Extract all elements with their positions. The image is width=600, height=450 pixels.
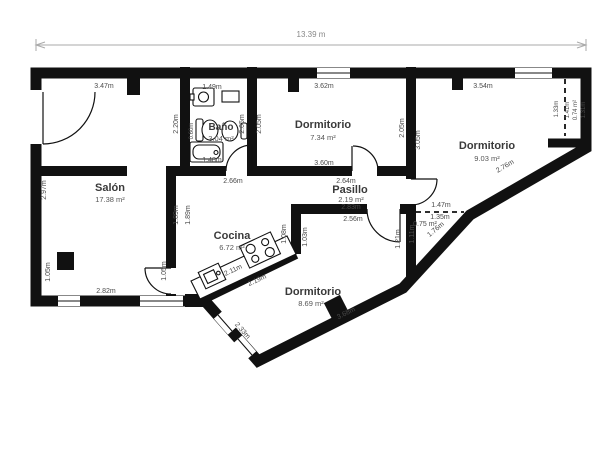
bathroom-cabinet [222,91,239,102]
dim-closet-mid-right: 1.11m [409,224,416,243]
dim-dorm2-top: 3.54m [473,83,493,90]
dim-bano-bath: 1.48m [202,157,222,164]
dim-bano-left: 2.20m [173,114,180,134]
room-label-dormitorio2: Dormitorio [459,140,516,152]
floor-plan-page: 13.39 m [0,0,600,450]
dim-closet-mid-left: 1.21m [395,229,402,249]
dim-dorm1-top: 3.62m [314,83,334,90]
dim-dorm1-bottom: 3.60m [314,160,334,167]
dim-pasillo-top: 2.64m [336,178,356,185]
dim-closet-top-height: 1.41m [565,102,571,119]
entrance-door [43,92,95,144]
dim-salon-bottom-right: 1.05m [161,261,168,281]
dim-closet-mid-top: 1.47m [431,202,451,209]
dim-closet-top-open: 1.33m [554,101,560,118]
dim-salon-bottom: 2.82m [96,288,116,295]
room-label-bano: Baño [209,122,234,133]
closet-top-area: 0.74 m² [573,100,579,120]
dim-salon-kitchen-wall-a: 1.89m [173,205,180,225]
dim-salon-top: 3.47m [94,83,114,90]
room-label-salon: Salón [95,182,125,194]
dim-bano-bottom: 2.66m [223,178,243,185]
room-label-dormitorio3: Dormitorio [285,286,342,298]
room-area-cocina: 6.72 m² [219,243,245,252]
pillar [288,70,299,92]
dim-dorm2-left: 3.05m [415,130,422,150]
room-area-dormitorio3: 8.69 m² [298,299,324,308]
dim-bano-toilet: 0.60m [189,123,195,140]
pillar [452,70,463,90]
room-area-bano: 3.04 m² [208,134,234,143]
scale-dimension: 13.39 m [36,30,586,51]
dim-closet-top-right: 1.31m [581,102,587,119]
room-area-salon: 17.38 m² [95,195,125,204]
floor-plan-drawing: 13.39 m [0,0,600,450]
dim-salon-kitchen-wall-b: 1.89m [185,205,192,225]
room-label-cocina: Cocina [214,230,252,242]
dim-dorm1-right: 2.05m [399,118,406,138]
walls [29,67,588,361]
total-width-label: 13.39 m [297,30,326,39]
dim-cocina-wall-west: 1.08m [281,224,288,244]
room-area-dormitorio1: 7.34 m² [310,133,336,142]
pillar [57,252,74,270]
dim-salon-left: 2.97m [41,180,48,200]
room-area-dormitorio2: 9.03 m² [474,154,500,163]
entrance-opening [29,90,42,144]
dim-bano-right: 2.05m [239,114,246,134]
dim-closet-mid-open: 1.35m [430,214,450,221]
pillar [127,70,140,95]
room-label-dormitorio1: Dormitorio [295,119,352,131]
outer-wall [36,73,586,361]
dim-pasillo-bottom: 2.56m [343,216,363,223]
dim-pasillo-length: 2.83m [341,204,361,211]
dim-dorm1-left: 2.05m [256,114,263,134]
dim-salon-bottom-left: 1.05m [45,262,52,282]
dim-cocina-wall-east: 1.03m [302,227,309,247]
dim-bano-top: 1.49m [202,84,222,91]
room-area-pasillo: 2.19 m² [338,195,364,204]
bedroom1-door [352,146,378,171]
